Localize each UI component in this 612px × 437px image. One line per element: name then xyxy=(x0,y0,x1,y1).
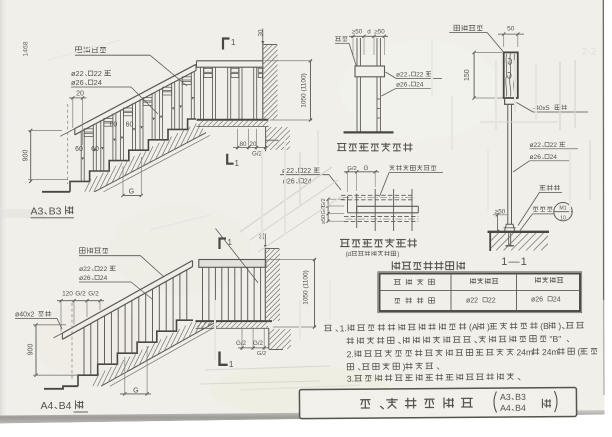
svg-text:22: 22 xyxy=(303,168,311,175)
svg-text:ø22: ø22 xyxy=(71,69,84,78)
svg-text:"B": "B" xyxy=(549,334,561,344)
svg-text:B3: B3 xyxy=(515,392,526,402)
svg-text:22: 22 xyxy=(488,298,496,305)
svg-text:24m: 24m xyxy=(516,347,533,357)
svg-text:20: 20 xyxy=(76,91,84,98)
svg-text:1—1: 1—1 xyxy=(501,256,528,268)
svg-text:2.: 2. xyxy=(346,349,353,359)
svg-text:24: 24 xyxy=(94,78,102,87)
svg-text:): ) xyxy=(403,362,406,372)
svg-text:900: 900 xyxy=(23,150,30,162)
svg-text:2-2: 2-2 xyxy=(582,47,597,58)
svg-text:≥50: ≥50 xyxy=(374,29,385,36)
svg-text:60: 60 xyxy=(126,122,134,129)
svg-text:22: 22 xyxy=(94,69,102,78)
svg-text:ø40x2: ø40x2 xyxy=(15,312,35,319)
svg-text:1: 1 xyxy=(231,38,236,47)
svg-text:22: 22 xyxy=(100,266,108,273)
svg-text:M1: M1 xyxy=(559,206,566,212)
svg-text:(: ( xyxy=(577,347,580,357)
svg-text:24: 24 xyxy=(550,154,558,161)
svg-text:1.: 1. xyxy=(339,323,346,333)
svg-text:ø22: ø22 xyxy=(530,142,542,149)
svg-text:B4: B4 xyxy=(59,400,72,412)
svg-text:ø22: ø22 xyxy=(396,72,408,79)
svg-text:150: 150 xyxy=(464,69,471,81)
svg-text:1: 1 xyxy=(229,359,234,369)
svg-text:ø26: ø26 xyxy=(531,297,543,304)
svg-text:A4: A4 xyxy=(41,400,54,412)
svg-text:60: 60 xyxy=(110,122,118,129)
svg-text:ø26: ø26 xyxy=(79,275,91,282)
svg-text:20: 20 xyxy=(250,141,257,148)
svg-text:24: 24 xyxy=(416,82,424,89)
svg-text:ø26: ø26 xyxy=(530,154,542,161)
svg-text:900: 900 xyxy=(28,344,35,356)
svg-text:G/2: G/2 xyxy=(236,340,247,347)
svg-text:G/2: G/2 xyxy=(88,291,99,298)
svg-text:24: 24 xyxy=(100,275,108,282)
svg-text:1050 (1100): 1050 (1100) xyxy=(303,270,310,305)
svg-text:): ) xyxy=(558,321,561,331)
svg-text:G: G xyxy=(364,165,369,172)
svg-text:22: 22 xyxy=(416,72,424,79)
svg-text:G: G xyxy=(133,387,138,394)
svg-text:d: d xyxy=(348,251,352,258)
svg-text:1: 1 xyxy=(228,238,233,247)
svg-text:120: 120 xyxy=(62,291,73,298)
svg-text:G/2: G/2 xyxy=(75,291,86,298)
svg-text:G: G xyxy=(129,188,134,195)
svg-text:60: 60 xyxy=(75,146,83,153)
svg-text:1: 1 xyxy=(235,159,240,168)
svg-text:G/2: G/2 xyxy=(253,340,264,347)
svg-text:1050 (1100): 1050 (1100) xyxy=(301,73,308,108)
svg-text:ø22: ø22 xyxy=(79,266,91,273)
svg-text:ø26: ø26 xyxy=(396,82,408,89)
svg-text:≥50: ≥50 xyxy=(321,215,327,224)
svg-text:ø22: ø22 xyxy=(466,298,478,305)
svg-text:A3: A3 xyxy=(31,206,44,218)
svg-text:d: d xyxy=(367,29,371,36)
svg-text:≥50: ≥50 xyxy=(352,29,363,36)
svg-text:10: 10 xyxy=(560,215,566,221)
svg-text:ø22: ø22 xyxy=(282,168,294,175)
svg-text:50: 50 xyxy=(507,26,515,33)
svg-text:A3: A3 xyxy=(500,392,511,402)
svg-text:22: 22 xyxy=(550,142,558,149)
svg-text:30: 30 xyxy=(258,29,265,36)
svg-text:3.: 3. xyxy=(347,374,354,384)
svg-text:(B: (B xyxy=(540,321,549,331)
svg-text:60: 60 xyxy=(91,146,99,153)
svg-text:): ) xyxy=(397,251,399,258)
svg-text:(A: (A xyxy=(469,322,478,332)
svg-text:): ) xyxy=(487,322,490,332)
svg-text:B4: B4 xyxy=(515,403,526,413)
svg-text:1468: 1468 xyxy=(23,41,30,56)
svg-text:24m: 24m xyxy=(542,347,559,357)
svg-text:80: 80 xyxy=(240,141,247,148)
svg-text:ø26: ø26 xyxy=(71,78,84,87)
svg-text:A4: A4 xyxy=(500,403,511,413)
svg-text:B3: B3 xyxy=(49,206,62,218)
svg-text:24: 24 xyxy=(553,297,561,304)
svg-text:G/2: G/2 xyxy=(257,351,266,357)
